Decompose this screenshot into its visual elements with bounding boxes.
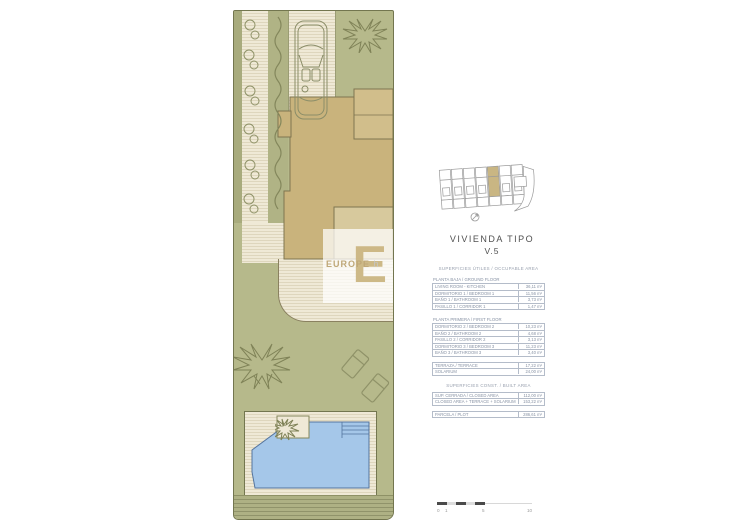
- page: E EUROPE h: [0, 0, 756, 528]
- front-path-band: [234, 495, 393, 520]
- area-tables: SUPERFICIES ÚTILES / OCCUPABLE AREA PLAN…: [432, 266, 545, 418]
- table-row: PASILLO 1 / CORRIDOR 11,47 m²: [432, 303, 545, 311]
- hedge-icon: [268, 13, 288, 223]
- brand-name: EUROPE h: [326, 259, 380, 269]
- table-row: SOLARIUM24,00 m²: [432, 368, 545, 376]
- table-row: PARCELA / PLOT286,61 m²: [432, 411, 545, 419]
- scale-bar: 0 1 5 10: [437, 503, 532, 514]
- keyplan-highlighted-unit: [487, 166, 501, 206]
- table-row: CLOSED AREA + TERRACE + SOLARIUM153,22 m…: [432, 398, 545, 406]
- title-line1: VIVIENDA TIPO: [428, 234, 556, 244]
- pool-deck: [244, 411, 377, 497]
- useful-area-header: SUPERFICIES ÚTILES / OCCUPABLE AREA: [432, 266, 545, 271]
- table-row: BAÑO 3 / BATHROOM 33,40 m²: [432, 349, 545, 357]
- keyplan-diagram: [437, 153, 535, 227]
- site-plan: E EUROPE h: [233, 10, 394, 520]
- scale-bar-labels: 0 1 5 10: [437, 507, 532, 514]
- car-icon: [291, 19, 331, 123]
- lounger-icon: [327, 339, 393, 415]
- built-area-header: SUPERFICIES CONST. / BUILT AREA: [432, 383, 545, 388]
- planter-icon: [275, 414, 313, 442]
- watermark: E EUROPE h: [323, 229, 393, 303]
- compass-icon: [471, 213, 479, 221]
- bushes-icon: [240, 13, 268, 223]
- plan-title: VIVIENDA TIPO V.5: [428, 234, 556, 256]
- tree-icon: [234, 316, 292, 408]
- tree-icon: [339, 11, 391, 53]
- title-line2: V.5: [428, 246, 556, 256]
